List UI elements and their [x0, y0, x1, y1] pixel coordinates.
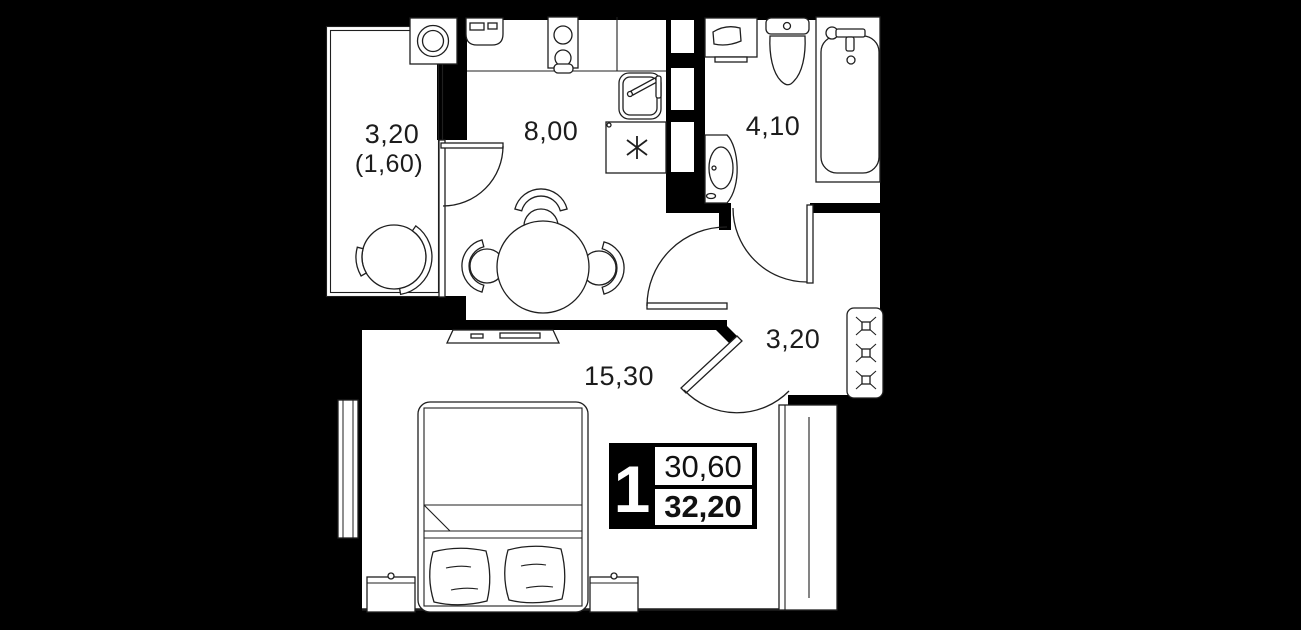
bath-shelf-icon	[705, 18, 757, 62]
balcony-glazing	[439, 140, 445, 297]
vent-shaft-cell	[671, 122, 694, 172]
living-room-area-label: 15,30	[584, 361, 654, 391]
balcony-reduced-area-label: (1,60)	[355, 150, 423, 178]
nightstand-icon	[367, 573, 415, 612]
double-bed-icon	[418, 402, 588, 612]
wall-hall-stub	[719, 203, 731, 230]
floor-plan-svg: 3,20 (1,60) 8,00 4,10 15,30 3,20 1 30,60…	[0, 0, 1301, 630]
washbasin-icon	[705, 135, 737, 203]
wall-left-upper	[322, 296, 362, 404]
wall-left-window-strip	[322, 404, 338, 538]
rooms-count: 1	[614, 452, 651, 526]
floor-plan-screenshot: 3,20 (1,60) 8,00 4,10 15,30 3,20 1 30,60…	[0, 0, 1301, 630]
total-area-value: 32,20	[664, 489, 742, 524]
kitchen-appliance-icon	[466, 18, 503, 45]
sliding-wardrobe-icon	[779, 405, 837, 610]
balcony-area-label: 3,20	[365, 119, 420, 149]
pillow-icon	[505, 546, 565, 603]
wall-kitchen-living-chunk	[362, 296, 466, 330]
stove-icon	[548, 17, 578, 73]
kitchen-sink-icon	[619, 73, 661, 119]
hallway-area-label: 3,20	[766, 324, 821, 354]
summary-info-box: 1 30,60 32,20	[609, 443, 757, 529]
dining-passage-floor	[667, 213, 727, 330]
wall-bath-bottom-right	[810, 203, 888, 213]
washing-machine-icon	[410, 18, 457, 64]
fridge-icon	[606, 122, 666, 173]
wall-kitchen-living-bar	[466, 320, 727, 330]
window-left	[338, 400, 358, 538]
nightstand-icon	[590, 573, 638, 612]
bathtub-icon	[816, 17, 880, 182]
bathroom-area-label: 4,10	[746, 111, 801, 141]
kitchen-area-label: 8,00	[524, 116, 579, 146]
hallway-wardrobe-icon	[847, 308, 883, 398]
wall-left-lower	[322, 536, 362, 612]
pillow-icon	[430, 548, 490, 605]
tv-stand-icon	[447, 330, 559, 343]
vent-shaft-cell	[671, 68, 694, 110]
living-area-value: 30,60	[664, 449, 742, 484]
vent-shaft-cell	[671, 20, 694, 53]
